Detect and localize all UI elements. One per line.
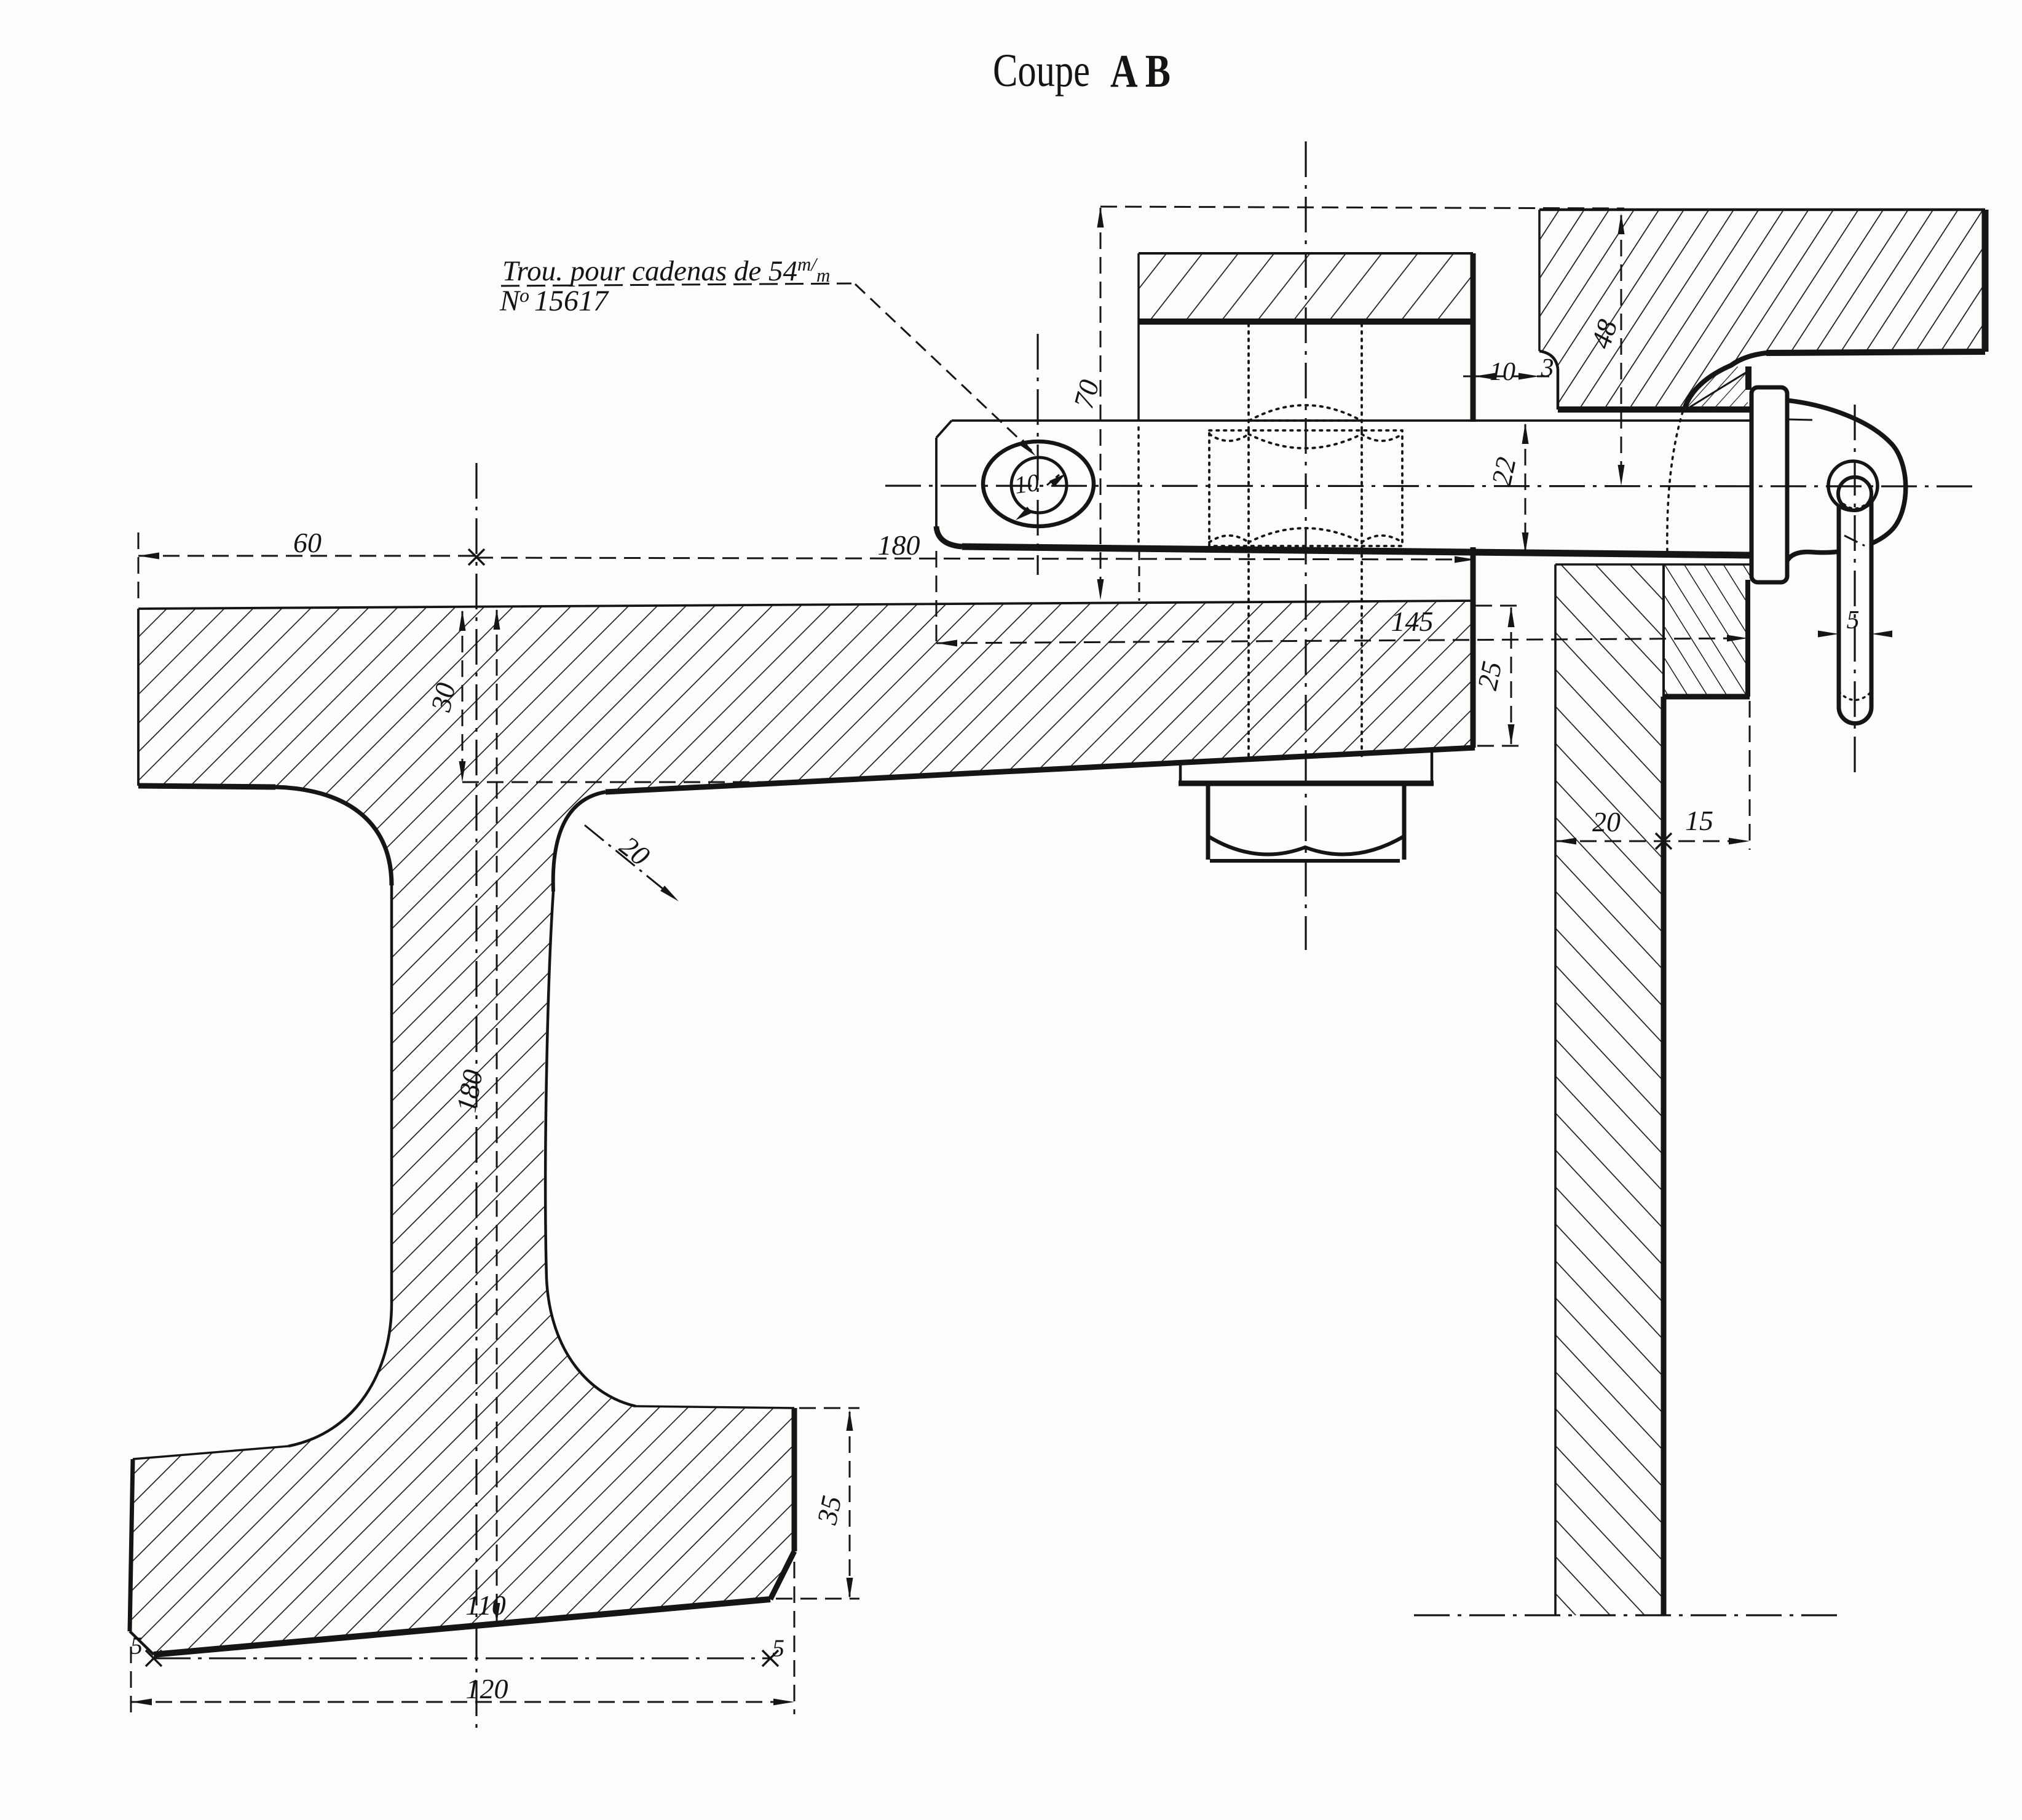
svg-text:3: 3: [1541, 354, 1554, 382]
svg-text:110: 110: [465, 1589, 506, 1621]
svg-text:5: 5: [772, 1634, 784, 1662]
svg-text:Coupe: Coupe: [993, 45, 1090, 97]
svg-text:A B: A B: [1110, 45, 1171, 97]
svg-text:60: 60: [293, 527, 322, 558]
svg-text:120: 120: [466, 1673, 508, 1704]
svg-text:Trou. pour cadenas de 54m/m: Trou. pour cadenas de 54m/m: [502, 253, 830, 287]
svg-text:15: 15: [1685, 805, 1713, 836]
svg-text:5: 5: [1847, 606, 1860, 635]
svg-text:No15617: No15617: [499, 284, 609, 317]
svg-text:180: 180: [878, 529, 920, 561]
svg-text:145: 145: [1391, 606, 1434, 637]
svg-text:10: 10: [1013, 469, 1041, 499]
svg-text:20: 20: [1592, 806, 1621, 837]
svg-text:5: 5: [130, 1632, 143, 1660]
svg-text:10: 10: [1490, 358, 1515, 386]
